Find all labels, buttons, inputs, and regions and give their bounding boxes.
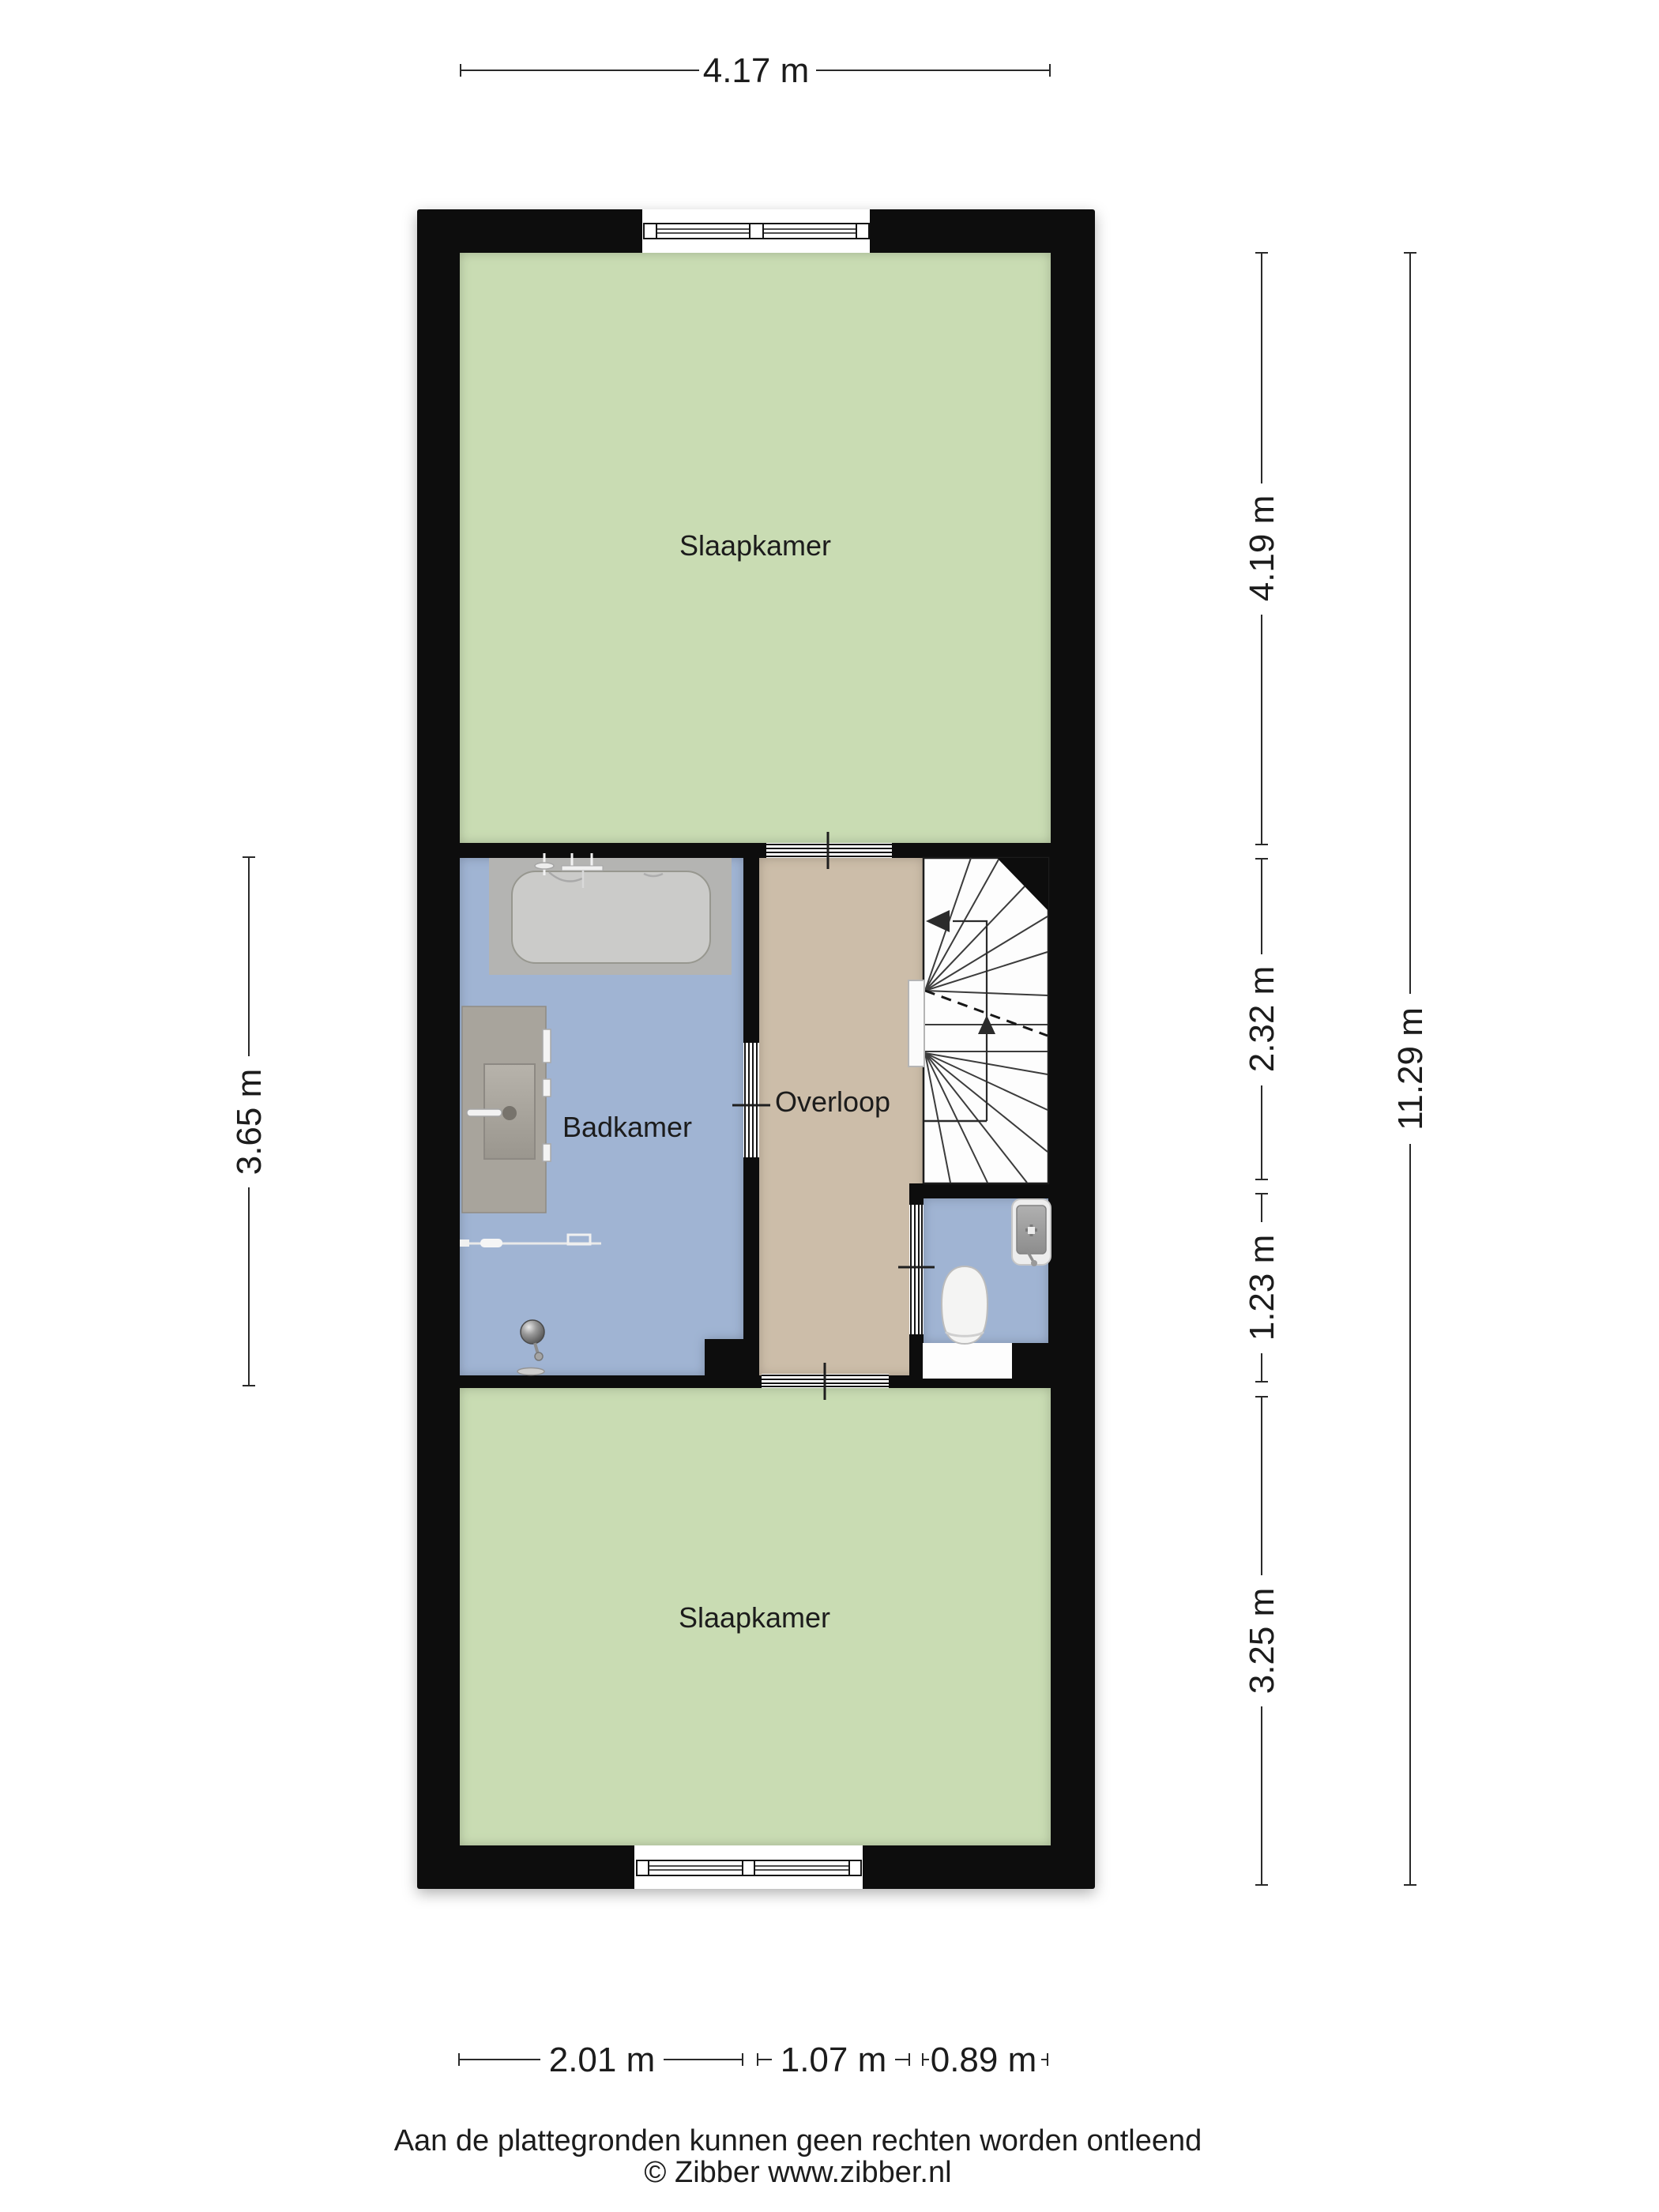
svg-text:© Zibber www.zibber.nl: © Zibber www.zibber.nl [644,2156,951,2189]
svg-text:4.17 m: 4.17 m [703,51,810,90]
svg-text:3.25 m: 3.25 m [1243,1588,1281,1695]
svg-text:11.29 m: 11.29 m [1391,1007,1430,1130]
svg-text:Slaapkamer: Slaapkamer [679,1601,830,1634]
svg-text:2.01 m: 2.01 m [549,2041,656,2079]
svg-text:0.89 m: 0.89 m [931,2041,1037,2079]
svg-text:4.19 m: 4.19 m [1243,495,1281,602]
svg-text:Aan de plattegronden kunnen ge: Aan de plattegronden kunnen geen rechten… [394,2124,1202,2157]
svg-text:1.23 m: 1.23 m [1243,1235,1281,1341]
svg-text:2.32 m: 2.32 m [1243,966,1281,1073]
svg-text:3.65 m: 3.65 m [230,1069,269,1176]
svg-text:1.07 m: 1.07 m [781,2041,887,2079]
svg-text:Slaapkamer: Slaapkamer [679,529,831,562]
svg-text:Overloop: Overloop [775,1085,890,1118]
svg-text:Badkamer: Badkamer [562,1111,692,1143]
